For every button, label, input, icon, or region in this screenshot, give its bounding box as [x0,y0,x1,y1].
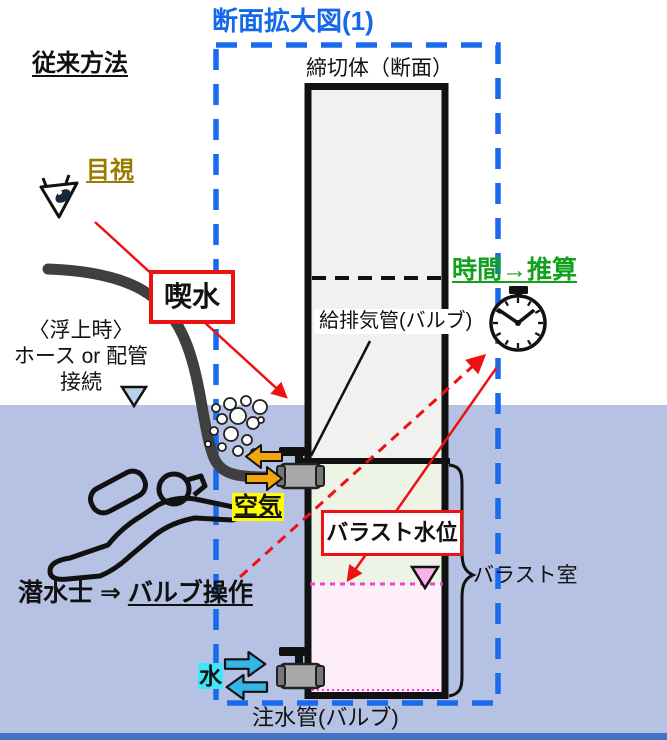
draft-callout: 喫水 [149,270,235,324]
ballast-level-callout: バラスト水位 [321,510,463,556]
tank-upper-fill [306,84,447,461]
diver-operation-label: 潜水士 ⇒ バルブ操作 [18,579,253,608]
air-label: 空気 [232,493,284,521]
diver-prefix: 潜水士 ⇒ [18,579,128,607]
water-pipe-label: 注水管(バルブ) [252,705,399,730]
surfacing-line3: 接続 [60,371,102,394]
eye-icon [41,175,77,217]
surfacing-line2: ホース or 配管 [14,345,148,368]
surfacing-line1: 〈浮上時〉 [29,319,134,342]
water-label: 水 [198,663,223,689]
cofferdam-tank [303,84,450,696]
ballast-water-section [306,584,447,696]
ballast-room-label: バラスト室 [473,564,578,588]
diver-action: バルブ操作 [128,579,253,607]
page-title: 断面拡大図(1) [212,7,374,37]
air-pipe-label: 給排気管(バルブ) [314,309,477,334]
time-estimate-label: 時間→推算 [452,256,577,285]
diagram-canvas: 断面拡大図(1) 従来方法 締切体（断面） 目視 喫水 〈浮上時〉 ホース or… [0,0,667,740]
deep-water-strip [0,733,667,740]
method-label: 従来方法 [32,50,128,78]
cofferdam-label: 締切体（断面） [306,57,453,81]
surfacing-note: 〈浮上時〉 ホース or 配管 接続 [8,318,154,396]
visual-check-label: 目視 [86,157,134,185]
draft-label: 喫水 [164,281,220,313]
ballast-level-label: バラスト水位 [326,520,458,545]
